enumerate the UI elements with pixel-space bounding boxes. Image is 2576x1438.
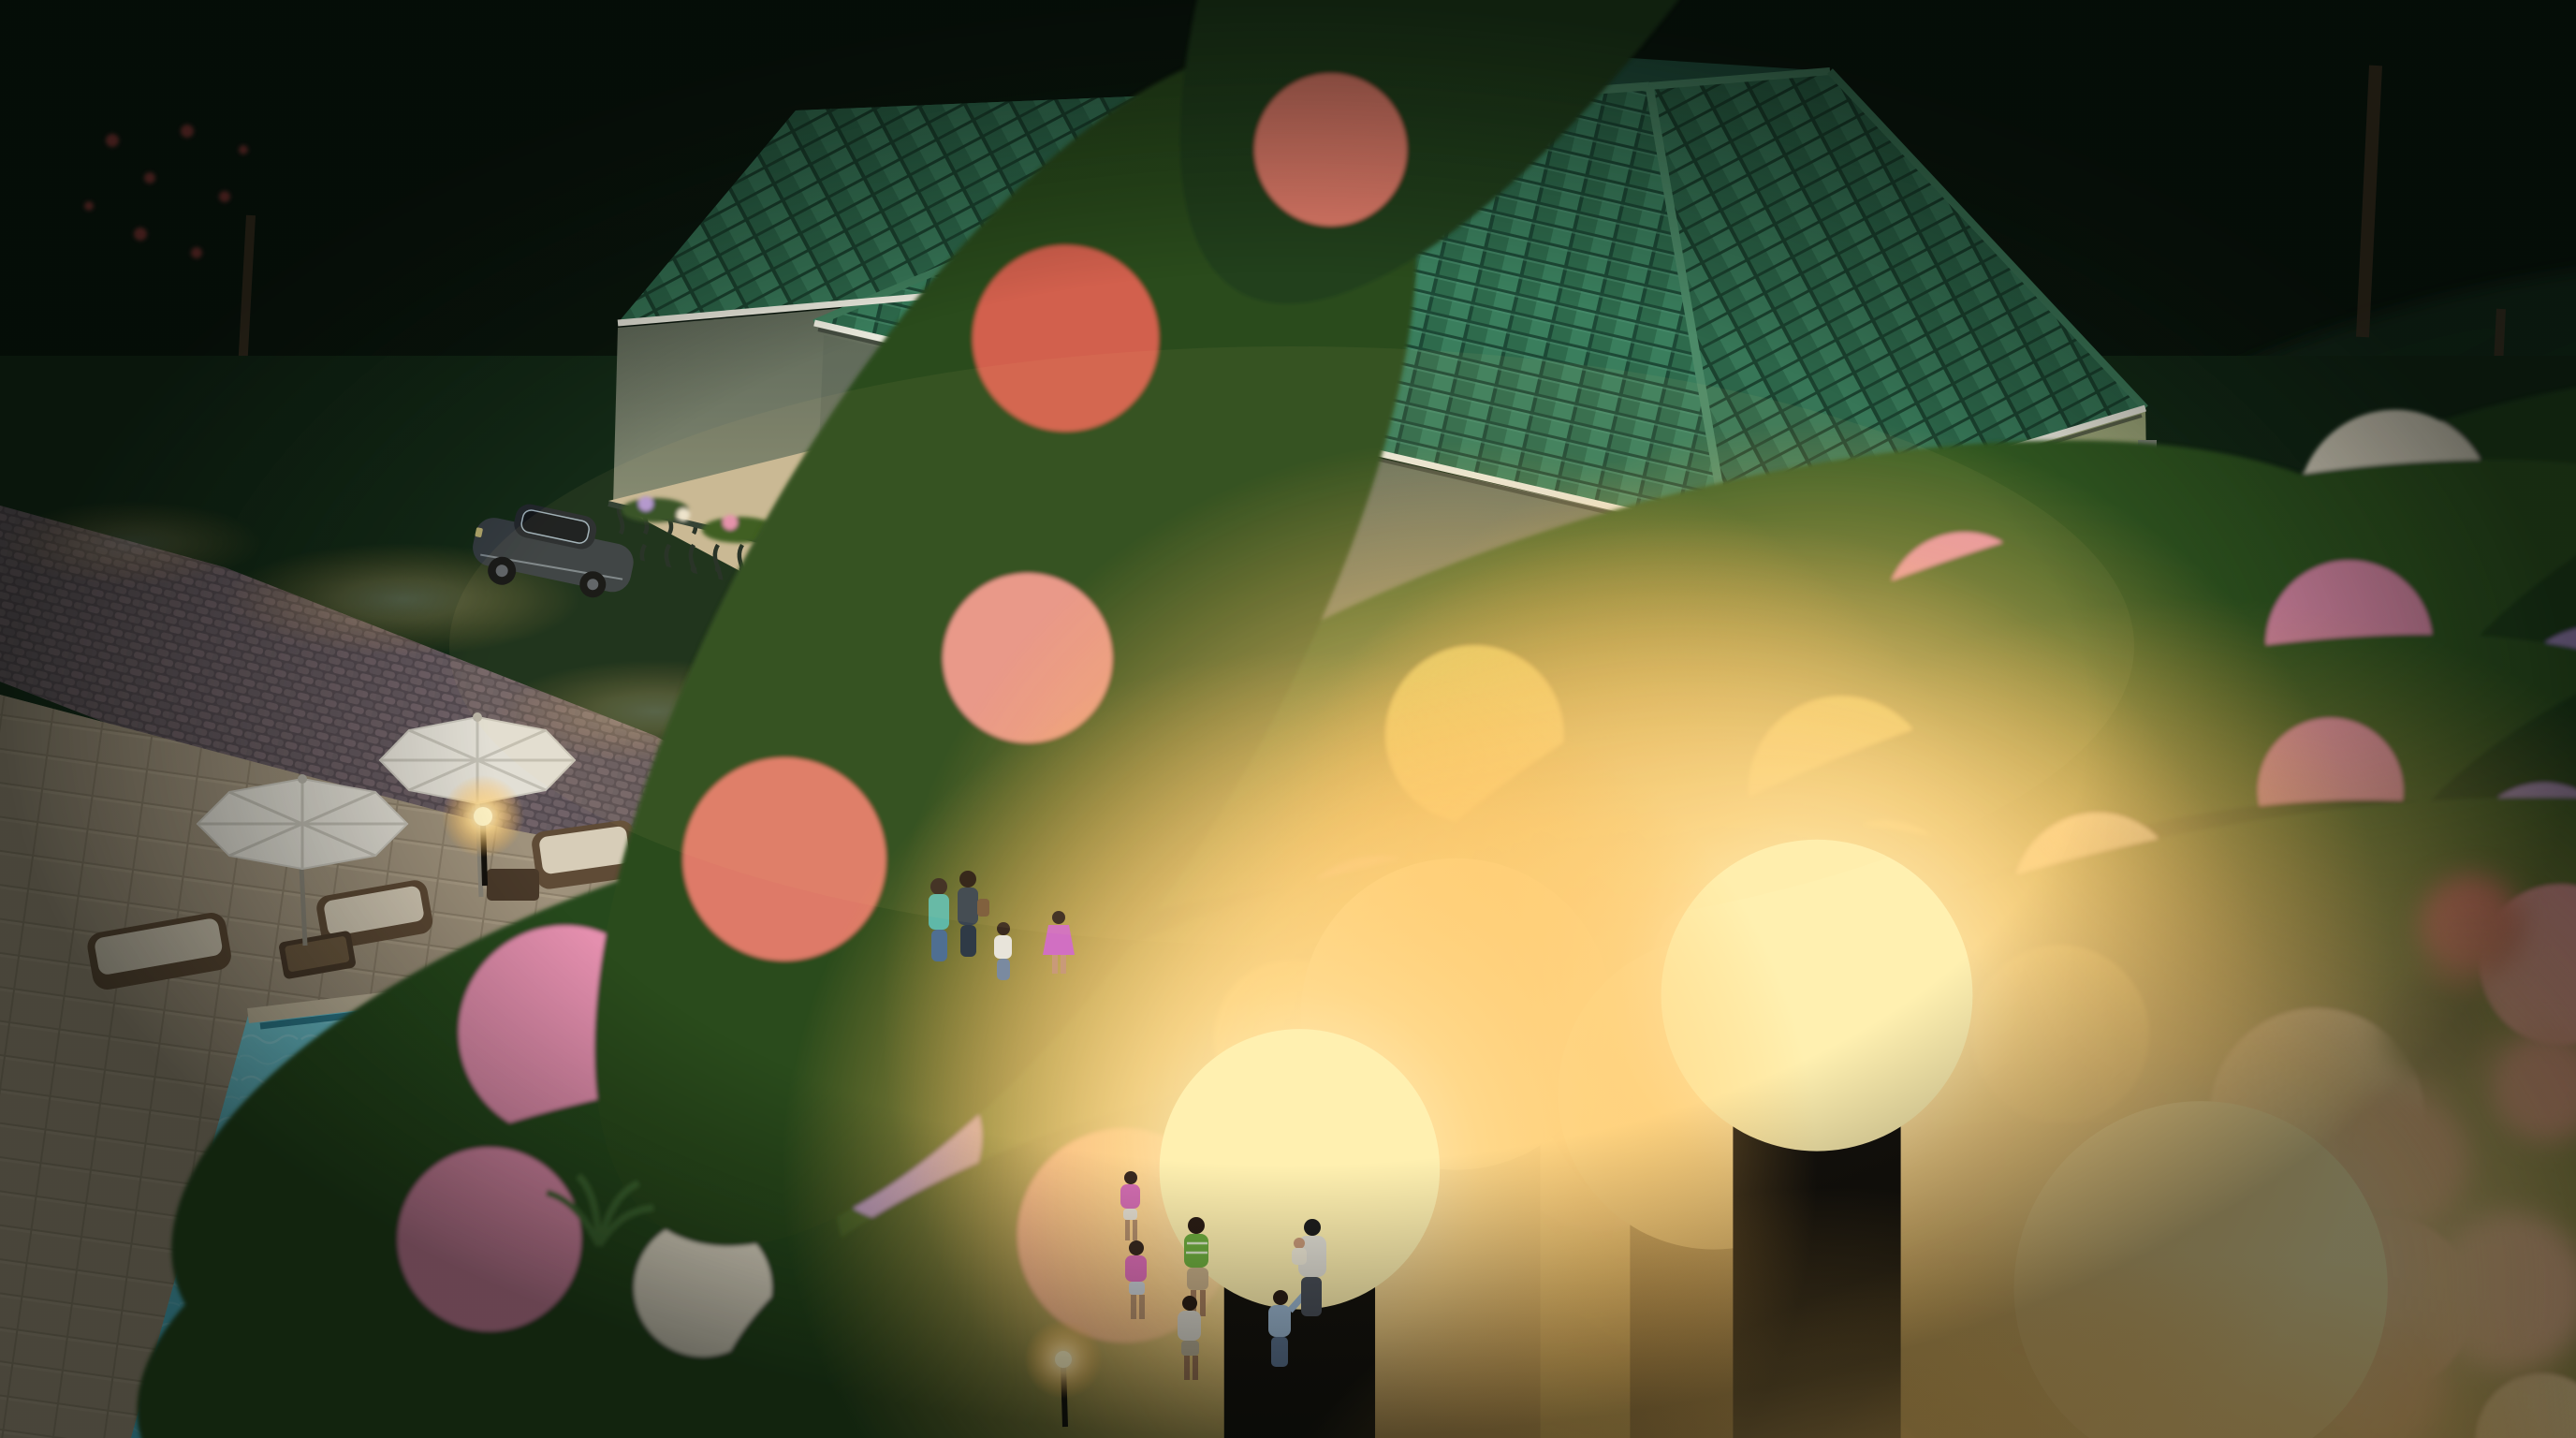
scene-canvas xyxy=(0,0,2576,1438)
atmosphere xyxy=(0,0,2576,1438)
villa-dusk-scene xyxy=(0,0,2576,1438)
vignette xyxy=(0,0,2576,1438)
